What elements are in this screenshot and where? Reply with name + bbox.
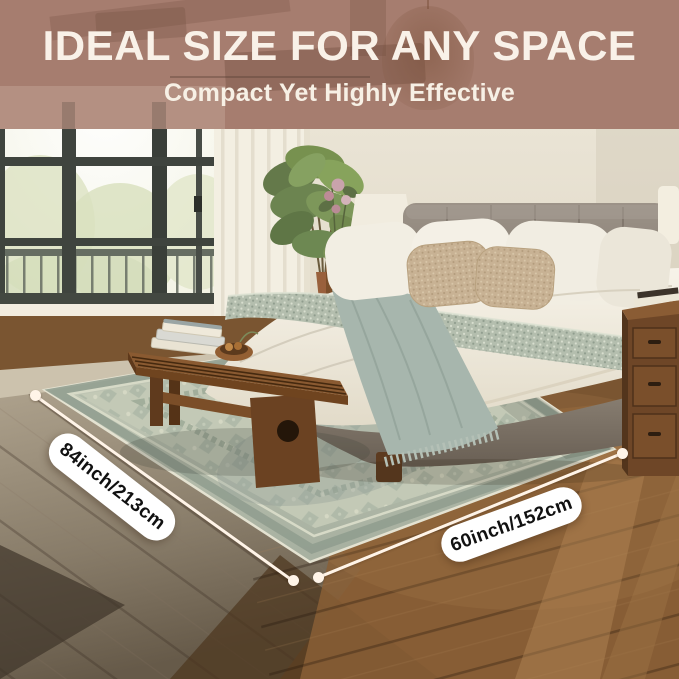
measure-endpoint-icon: [617, 448, 628, 459]
measure-endpoint-icon: [288, 575, 299, 586]
dimension-label-width: 60inch/152cm: [436, 482, 587, 567]
measure-endpoint-icon: [313, 572, 324, 583]
measure-endpoint-icon: [30, 390, 41, 401]
width-value: 60inch/152cm: [447, 492, 575, 557]
product-image: IDEAL SIZE FOR ANY SPACE Compact Yet Hig…: [0, 0, 679, 679]
measurement-layer: 84inch/213cm 60inch/152cm: [0, 0, 679, 679]
measure-line-length: [34, 394, 294, 582]
